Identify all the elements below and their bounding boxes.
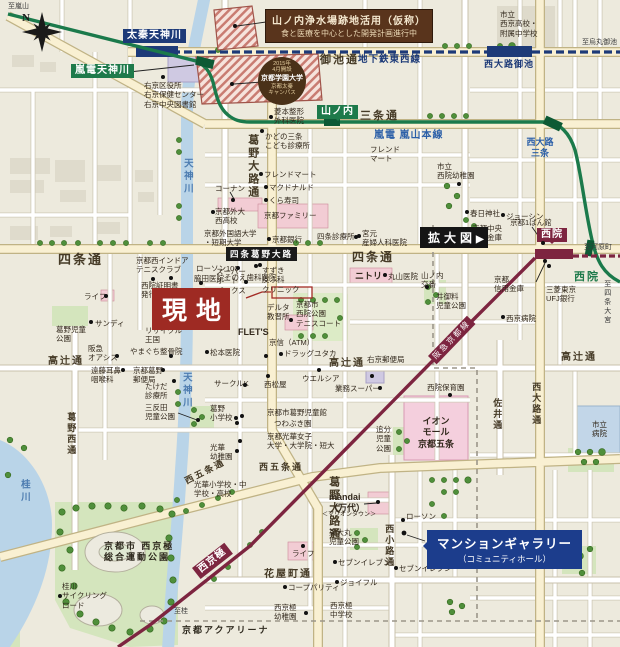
poi-drug-yutaka-dot [279,352,283,356]
poi-seven-eleven-2-dot [394,566,398,570]
station-yamanouchi: 山ノ内 [317,105,358,119]
poi-lawson: ローソン [406,512,436,521]
poi-kyoto-aquarena: 京都アクアリーナ [182,625,270,636]
poi-welcia: ウエルシア [302,374,340,383]
poi-circle-k-dot [243,383,247,387]
poi-kyoto-family: 京都ファミリー [264,211,317,220]
station-randen-tenjingawa: 嵐電天神川 [71,64,134,78]
campus-word: キャンパス [258,90,306,96]
poi-kadono-jidokan: 京都市葛野児童館 [267,408,327,417]
poi-life-1-dot [104,294,108,298]
info-box-subtitle: 食と医療を中心とした開発計画進行中 [272,28,426,39]
poi-friend-mart-1: フレンド マート [370,145,400,164]
poi-seven-eleven-1: セブンイレブン [338,558,391,567]
poi-kasuga-shrine: 春日神社 [470,209,500,218]
kyoto-saiin-area-map: N 山ノ内浄水場跡地活用（仮称） 食と医療を中心とした開発計画進行中 2015年… [0,0,620,647]
poi-tsuwabuki-en-dot [235,421,239,425]
station-saiin-randen: 西院 [574,271,600,285]
poi-nishikyogoku-jhs: 西京極 中学校 [330,601,353,620]
poi-delta-driving-school: デルタ 教習所 [267,303,290,322]
poi-kyoto-bank: 京都銀行 [272,235,302,244]
station-saiin-hankyu: 西院 [537,228,567,242]
poi-takeda-clinic: たけだ 診療所 [145,382,168,401]
poi-kadono-post-office-dot [161,368,165,372]
poi-nishikyogoku-sports-park: 京都市 西京極 総合運動公園 [104,541,174,564]
poi-hankyu-oasis-dot [115,354,119,358]
street-takatsuji-center: 高辻通 [329,358,365,371]
enlarge-text: 拡大図 [428,231,476,245]
gallery-subtitle: （コミュニティホール） [437,553,572,565]
poi-joyful-dot [335,580,339,584]
poi-suzuki-dermatology: すずき 皮ふ科 クリニック [262,266,300,294]
poi-matsumoto-clinic: 松本医院 [210,348,240,357]
poi-nitori: ニトリ [355,271,382,282]
poi-saiin-city-kindergarten-dot [457,182,461,186]
poi-suzuki-dermatology-dot [258,263,262,267]
poi-kyoto-gaidai-nishi-hs: 京都外大 西高校 [215,207,245,226]
poi-wakita-clinic-dot [199,281,203,285]
poi-mufg-bank: 三菱東京 UFJ銀行 [546,285,576,304]
kyoto-gakuen-university-badge: 2015年 4月開設 京都学園大学 京都太秦 キャンパス [258,57,306,105]
street-sanjo-dori: 三条通 [360,110,399,124]
poi-flets: FLET'S [238,327,269,338]
shijo-kadono-oji-intersection-label: 四条葛野大路 [226,247,297,261]
poi-nishikyogoku-kindergarten: 西京極 幼稚園 [274,603,297,622]
street-kadono-oji-upper: 葛野大路通 [245,134,259,199]
poi-endo-ent-clinic: 遠藤耳鼻 咽喉科 [91,366,121,385]
poi-kyoto-west-indoor-tennis-dot [169,276,173,280]
poi-sonoe-dental-dot [244,280,248,284]
river-tenjingawa-lower: 天神川 [179,372,191,410]
poi-life-2: ライフ [292,549,315,558]
street-hanayacho-dori: 花屋町通 [264,569,312,582]
compass-rose-icon [22,12,62,52]
poi-drug-yutaka: ドラッグユタカ [284,349,337,358]
enlarged-map-label: 拡大図▶ [420,227,488,248]
street-oike-dori: 御池通 [320,54,359,68]
poi-keishin-atm-dot [264,354,268,358]
poi-higashi-omaru-park: 東大丸 児童公園 [329,528,359,547]
poi-miyamoto-maternity: 宮元 産婦人科医院 [362,229,407,248]
poi-shijo-clinic: 四条診療所 [317,232,355,241]
poi-maruyama-clinic: 丸山医院 [388,272,418,281]
dir-to-katsura: 至桂 [174,607,188,616]
poi-mcdonalds-dot [264,185,268,189]
street-shijo-dori-west: 四条通 [58,252,103,268]
poi-coop-parity: コープパリティ [288,583,340,592]
street-shijo-dori-east: 四条通 [352,250,394,265]
poi-hishimoto-seikei: 菱本整形 外科医院 [274,107,304,126]
gallery-title: マンションギャラリー [437,533,572,552]
poi-life-2-dot [301,544,305,548]
enlarge-arrow-icon: ▶ [476,234,484,245]
poi-saiin-park-tennis-court: 京都市 西院公園 テニスコート [296,300,341,328]
dir-to-shijo-omiya: 至四条大宮 [603,280,612,325]
poi-kadono-sanjo-kids-clinic: かどの三条 こども診療所 [265,132,310,151]
station-nishikyogoku: 西京極 [192,543,233,579]
yamanouchi-redevelopment-info-box: 山ノ内浄水場跡地活用（仮称） 食と医療を中心とした開発計画進行中 [265,9,433,43]
poi-kyoto-west-indoor-tennis: 京都西インドア テニスクラブ [136,256,189,275]
poi-sandy-dot [89,320,93,324]
poi-maruyama-clinic-dot [383,273,387,277]
poi-saiin-certificate-corner-dot [151,277,155,281]
poi-tsuwabuki-en: つわぶき園 [274,419,312,428]
poi-katsura-cycling-road: 桂川 サイクリング ロード [62,582,107,610]
info-box-title: 山ノ内浄水場跡地活用（仮称） [272,12,426,27]
street-nishioji-dori: 西大路通 [530,382,541,426]
poi-kyoto-ichibankan-dot [541,241,545,245]
poi-santanda-jido-park-dot [196,418,200,422]
poi-koka-schools: 光華小学校・中 学校・高校 [194,480,247,499]
poi-kadono-elementary-dot [234,416,238,420]
poi-mandai-dot [376,500,380,504]
poi-mcdonalds: マクドナルド [269,183,314,192]
poi-joshin-dot [501,213,505,217]
poi-hishimoto-seikei-dot [269,115,273,119]
rail-hankyu-line-label: 阪急京都線 [428,316,476,365]
poi-saikyo-hospital-dot [501,315,505,319]
poi-takeda-clinic-dot [172,379,176,383]
poi-keishin-atm: 京信（ATM） [269,338,314,347]
poi-endo-ent-clinic-dot [121,368,125,372]
station-uzumasa-tenjingawa: 太秦天神川 [123,29,186,43]
campus-open: 4月開設 [258,67,306,73]
poi-saiin-hoikuen-dot [448,393,452,397]
poi-koka-womens-univ: 京都光華女子 大学・大学院・短大 [267,432,335,451]
poi-igoryo-jido-park: 井御料 児童公園 [436,292,466,311]
poi-hankyu-oasis: 阪急 オアシス [88,344,118,363]
poi-friend-mart-2-dot [259,172,263,176]
poi-ukyo-ward-office: 右京区役所 右京保健センター 右京中央図書館 [144,81,204,109]
rail-subway-tozai-label: 地下鉄東西線 [358,55,421,67]
station-nishioji-oike: 西大路御池 [484,59,534,70]
river-katsuragawa: 桂川 [17,479,29,504]
poi-kasuga-shrine-dot [465,210,469,214]
poi-joyful: ジョイフル [340,578,378,587]
campus-name: 京都学園大学 [258,75,306,83]
poi-kadono-jido-park: 葛野児童 公園 [56,325,86,344]
poi-saikyo-highschool: 市立 西京高校・ 附属中学校 [500,10,538,38]
poi-yamanouchi-koban-dot [425,285,429,289]
poi-kyoto-gaidai-nishi-hs-dot [211,210,215,214]
poi-ukyo-post-office: 右京郵便局 [367,355,405,364]
street-sai-dori: 佐井通 [491,398,502,431]
street-nishigojo-east: 西五条通 [259,462,303,473]
poi-aeon-mall-kyoto-gojo: イオン モール 京都五条 [414,416,458,450]
poi-matsumoto-clinic-dot [205,350,209,354]
poi-katsura-cycling-road-dot [58,594,62,598]
poi-welcia-dot [317,368,321,372]
poi-oiwake-jido-park: 追分 児童 公園 [376,425,391,453]
poi-friend-mart-2: フレンドマート [264,170,317,179]
poi-kadono-elementary: 葛野 小学校 [210,404,233,423]
poi-kyoto-ichibankan: 京都1ばん館 [510,218,552,227]
site-location-label: 現地 [152,288,230,330]
poi-ukyo-ward-office-dot [161,75,165,79]
poi-kyoto-shinkin: 京都 信用金庫 [494,275,524,294]
dir-to-kawaramachi: 至河原町 [584,243,612,252]
poi-yamaguchi-seikotsuin: やまぐち整骨院 [130,347,183,356]
poi-miyamoto-maternity-dot [357,234,361,238]
street-takatsuji-east: 高辻通 [561,352,597,365]
poi-gyomu-super-dot [378,386,382,390]
poi-seven-eleven-1-dot [333,560,337,564]
compass-north: N [22,12,30,24]
poi-lawson-dot [401,518,405,522]
poi-santanda-jido-park: 三反田 児童公園 [145,403,175,422]
poi-kura-sushi-dot [264,198,268,202]
street-kadononishi-dori: 葛野西通 [65,412,76,456]
poi-ukyo-post-office-dot [370,374,374,378]
poi-kyoto-bank-dot [267,237,271,241]
poi-nishikyogoku-kindergarten-dot [304,611,308,615]
poi-koka-womens-univ-dot [238,439,242,443]
poi-konan: コーナン [215,184,245,193]
poi-kyoto-shinkin-dot [543,259,547,263]
poi-konan-dot [231,198,235,202]
street-takatsuji-west: 高辻通 [48,356,84,369]
poi-nishimatsuya-dot [266,374,270,378]
poi-kadono-sanjo-kids-clinic-dot [260,129,264,133]
poi-sandy: サンディ [95,319,124,328]
poi-kyoto-univ-foreign-studies: 京都外国語大学 ・短期大学 [204,229,257,248]
station-nishioji-sanjo: 西大路 三条 [520,137,560,160]
poi-coop-parity-dot [283,585,287,589]
poi-gyomu-super: 業務スーパー [335,384,380,393]
poi-kura-sushi: くら寿司 [269,196,299,205]
poi-saiin-hoikuen: 西院保育園 [427,383,465,392]
poi-yamaguchi-seikotsuin-dot [169,354,173,358]
poi-saiin-city-kindergarten: 市立 西院幼稚園 [437,162,475,181]
mansion-gallery-label: マンションギャラリー （コミュニティホール） [427,530,582,569]
river-tenjingawa-upper: 天神川 [180,158,192,196]
poi-flets-dot [289,318,293,322]
poi-kadono-jidokan-dot [240,414,244,418]
dir-to-karasuma-oike: 至烏丸御池 [582,38,617,47]
poi-lawson-100-dot [236,266,240,270]
poi-koka-kindergarten-dot [235,449,239,453]
poi-city-hospital: 市立 病院 [592,420,607,439]
poi-marion-town: ＜マリオンタウン＞ [322,512,376,520]
poi-saikyo-hospital: 西京病院 [506,314,536,323]
poi-nishimatsuya: 西松屋 [264,380,287,389]
poi-mufg-bank-dot [547,264,551,268]
dir-to-arashiyama: 至嵐山 [8,2,29,11]
rail-randen-line-label: 嵐電 嵐山本線 [374,130,444,143]
